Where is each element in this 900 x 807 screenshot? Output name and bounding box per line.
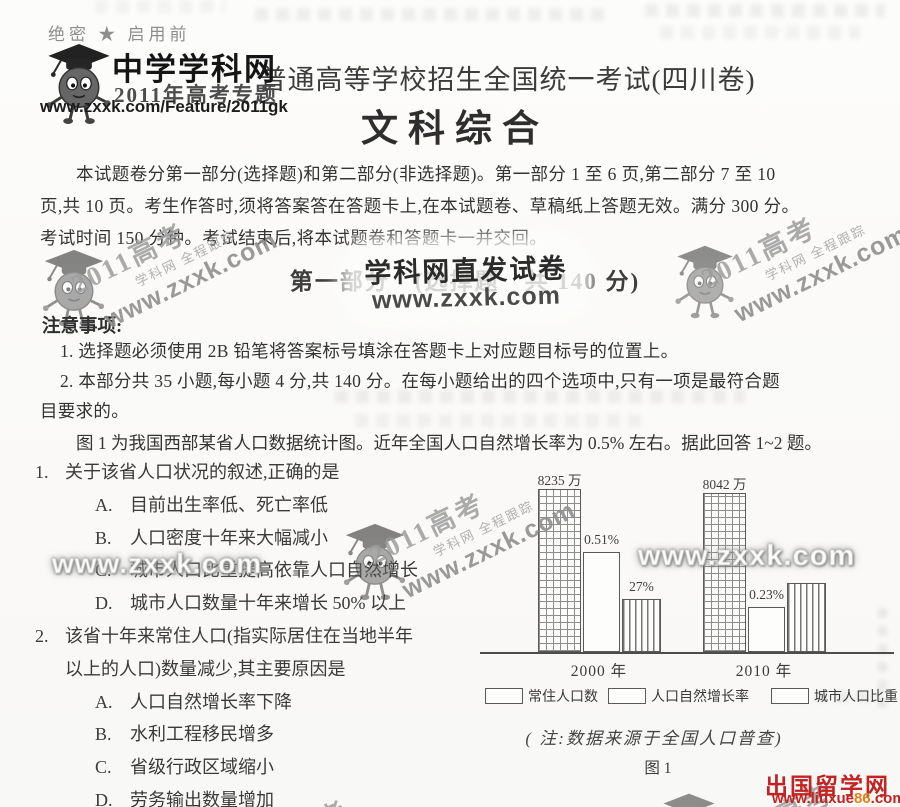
- legend-swatch-crosshatch: [485, 688, 523, 704]
- subject-title: 文科综合: [295, 98, 615, 152]
- option-text: 人口密度十年来大幅减小: [130, 528, 328, 548]
- option-text: 目前出生率低、死亡率低: [130, 495, 328, 515]
- bar-value-label: 27%: [606, 579, 677, 595]
- bar-value-label: 8042 万: [687, 473, 762, 493]
- legend-swatch-plain: [608, 688, 646, 704]
- option-text: 人口自然增长率下降: [130, 692, 292, 712]
- bar-城市人口比重-2000 年: [622, 599, 661, 652]
- question-number: 2.: [35, 620, 65, 653]
- notice-line: 1. 选择题必须使用 2B 铅笔将答案标号填涂在答题卡上对应题目标号的位置上。: [40, 336, 872, 366]
- liuxue-url-prefix: www.liuxue: [772, 790, 854, 807]
- answer-option: B.水利工程移民增多: [35, 718, 483, 751]
- bleedthrough-artifact: [255, 8, 605, 21]
- notice-line: 目要求的。: [40, 396, 872, 426]
- liuxue-url-number: 86: [854, 790, 871, 807]
- category-label: 2000 年: [549, 659, 649, 681]
- exam-title: 普通高等学校招生全国统一考试(四川卷): [235, 58, 780, 97]
- legend-swatch-vertical: [771, 688, 809, 704]
- answer-option: A.人口自然增长率下降: [35, 686, 483, 719]
- option-label: D.: [95, 587, 130, 620]
- legend-label: 城市人口比重: [814, 686, 898, 706]
- legend-label: 人口自然增长率: [651, 686, 749, 706]
- option-label: A.: [95, 686, 130, 719]
- question-stem: 2.该省十年来常住人口(指实际居住在当地半年: [35, 620, 483, 653]
- notice-line: 2. 本部分共 35 小题,每小题 4 分,共 140 分。在每小题给出的四个选…: [40, 366, 872, 396]
- bleedthrough-artifact: [645, 4, 885, 17]
- zxxk-stamp-watermark: 学科网直发试卷 www.zxxk.com: [349, 244, 583, 318]
- question-stem-text: 该省十年来常住人口(指实际居住在当地半年: [65, 626, 413, 646]
- option-label: A.: [95, 489, 130, 522]
- answer-option: D.劳务输出数量增加: [35, 784, 483, 807]
- zxxk-glow-watermark: www.zxxk.com: [638, 540, 855, 573]
- question-stem: 1.关于该省人口状况的叙述,正确的是: [35, 456, 483, 489]
- legend-label: 常住人口数: [528, 686, 598, 706]
- bleedthrough-artifact: [660, 26, 860, 39]
- option-text: 劳务输出数量增加: [130, 790, 274, 807]
- legend-item: 人口自然增长率: [608, 686, 749, 706]
- zxxk-mascot-icon: [658, 792, 720, 807]
- option-text: 省级行政区域缩小: [130, 757, 274, 777]
- category-label: 2010 年: [714, 659, 814, 681]
- passage-text: 图 1 为我国西部某省人口数据统计图。近年全国人口自然增长率为 0.5% 左右。…: [40, 428, 872, 458]
- bar-城市人口比重-2010 年: [787, 583, 826, 652]
- question-stem-text: 关于该省人口状况的叙述,正确的是: [65, 462, 340, 482]
- legend-item: 城市人口比重: [771, 686, 898, 706]
- liuxue-site-url: www.liuxue86.com: [772, 790, 900, 807]
- bleedthrough-artifact: [95, 0, 225, 13]
- question-stem-text: 以上的人口)数量减少,其主要原因是: [65, 653, 483, 686]
- scanned-exam-page: 绝密 ★ 启用前 中学学科网 2011年高考专题 www.zxxk.com/Fe…: [0, 0, 900, 807]
- stamp-line2: www.zxxk.com: [358, 281, 575, 316]
- zxxk-glow-watermark: www.zxxk.com: [52, 548, 262, 580]
- bar-人口自然增长率-2010 年: [748, 607, 785, 652]
- liuxue-url-suffix: .com: [871, 790, 900, 807]
- brand-url: www.zxxk.com/Feature/2011gk: [40, 97, 288, 117]
- notice-list: 1. 选择题必须使用 2B 铅笔将答案标号填涂在答题卡上对应题目标号的位置上。2…: [40, 336, 872, 426]
- option-label: B.: [95, 718, 130, 751]
- option-label: C.: [95, 751, 130, 784]
- option-text: 水利工程移民增多: [130, 724, 274, 744]
- option-label: D.: [95, 784, 130, 807]
- chart-note: ( 注:数据来源于全国人口普查): [478, 724, 830, 749]
- chart-x-axis: [480, 652, 894, 654]
- question-number: 1.: [35, 456, 65, 489]
- chart-caption: 图 1: [626, 756, 690, 778]
- instruction-line: 本试题卷分第一部分(选择题)和第二部分(非选择题)。第一部分 1 至 6 页,第…: [40, 158, 870, 190]
- bar-value-label: 0.51%: [567, 532, 636, 548]
- legend-item: 常住人口数: [485, 686, 598, 706]
- answer-option: C.省级行政区域缩小: [35, 751, 483, 784]
- bar-人口自然增长率-2000 年: [583, 552, 620, 652]
